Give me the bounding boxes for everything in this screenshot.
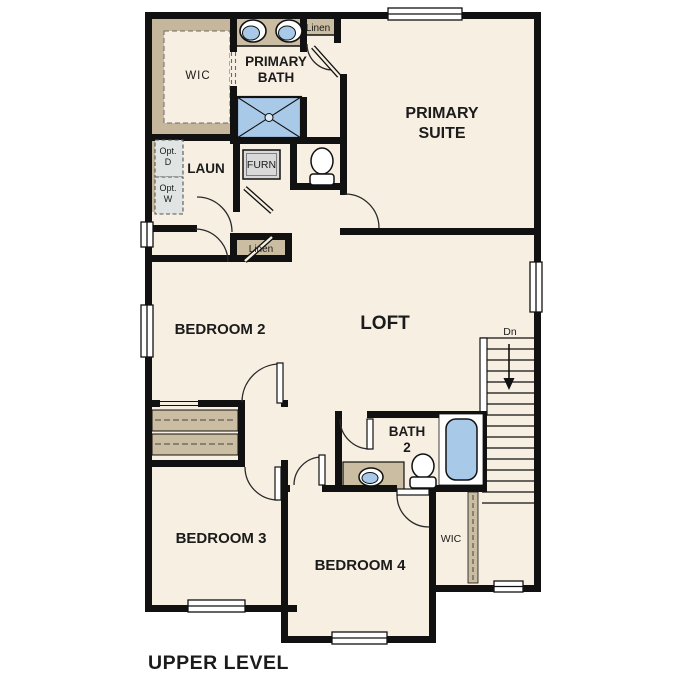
window-hall-left bbox=[141, 222, 153, 247]
label-primary-bath-1: PRIMARY bbox=[245, 54, 307, 69]
wic-cased-opening bbox=[230, 52, 237, 86]
label-bath2-1: BATH bbox=[389, 424, 426, 439]
label-linen-hall: Linen bbox=[249, 244, 273, 255]
label-bedroom3: BEDROOM 3 bbox=[176, 530, 267, 547]
door-leaf-bath2 bbox=[367, 419, 373, 449]
bath2-tub bbox=[439, 414, 483, 485]
label-wic-top: WIC bbox=[185, 70, 210, 82]
label-laundry: LAUN bbox=[187, 161, 225, 176]
window-understair-bottom bbox=[494, 581, 523, 592]
window-primary-suite-top bbox=[388, 8, 462, 20]
stair-rail bbox=[480, 338, 487, 415]
label-furnace: FURN bbox=[247, 159, 276, 171]
primary-bath-sink-2 bbox=[276, 20, 302, 42]
door-leaf-wic-bottom bbox=[397, 489, 429, 495]
label-wic-bottom: WIC bbox=[441, 533, 462, 545]
label-primary-suite-1: PRIMARY bbox=[405, 105, 479, 122]
label-bedroom4: BEDROOM 4 bbox=[315, 557, 407, 574]
primary-toilet bbox=[310, 148, 334, 185]
bath2-sink bbox=[359, 468, 383, 486]
label-primary-suite-2: SUITE bbox=[418, 125, 465, 142]
door-leaf-bedroom2 bbox=[277, 363, 283, 403]
window-bedroom4-bottom bbox=[332, 632, 387, 644]
window-bedroom2-left bbox=[141, 305, 153, 357]
label-opt-dryer-2: D bbox=[165, 157, 172, 167]
label-linen-top: Linen bbox=[306, 23, 330, 34]
door-leaf-bedroom3 bbox=[275, 467, 281, 500]
label-bedroom2: BEDROOM 2 bbox=[175, 321, 266, 338]
label-opt-washer-1: Opt. bbox=[159, 183, 176, 193]
label-loft: LOFT bbox=[360, 313, 410, 334]
label-bath2-2: 2 bbox=[403, 440, 411, 455]
plan-title: UPPER LEVEL bbox=[148, 652, 289, 674]
window-loft-right bbox=[530, 262, 542, 312]
label-stairs-dn: Dn bbox=[503, 326, 517, 338]
primary-shower bbox=[237, 97, 301, 138]
bath2-toilet bbox=[410, 454, 436, 488]
floorplan-upper-level: WIC PRIMARY BATH Linen PRIMARY SUITE LAU… bbox=[0, 0, 687, 687]
door-leaf-bedroom4 bbox=[319, 455, 325, 485]
floorplan-drawing: WIC PRIMARY BATH Linen PRIMARY SUITE LAU… bbox=[0, 0, 687, 687]
label-opt-dryer-1: Opt. bbox=[159, 146, 176, 156]
label-opt-washer-2: W bbox=[164, 194, 173, 204]
window-bedroom3-bottom bbox=[188, 600, 245, 612]
primary-bath-sink-1 bbox=[240, 20, 266, 42]
label-primary-bath-2: BATH bbox=[258, 70, 295, 85]
